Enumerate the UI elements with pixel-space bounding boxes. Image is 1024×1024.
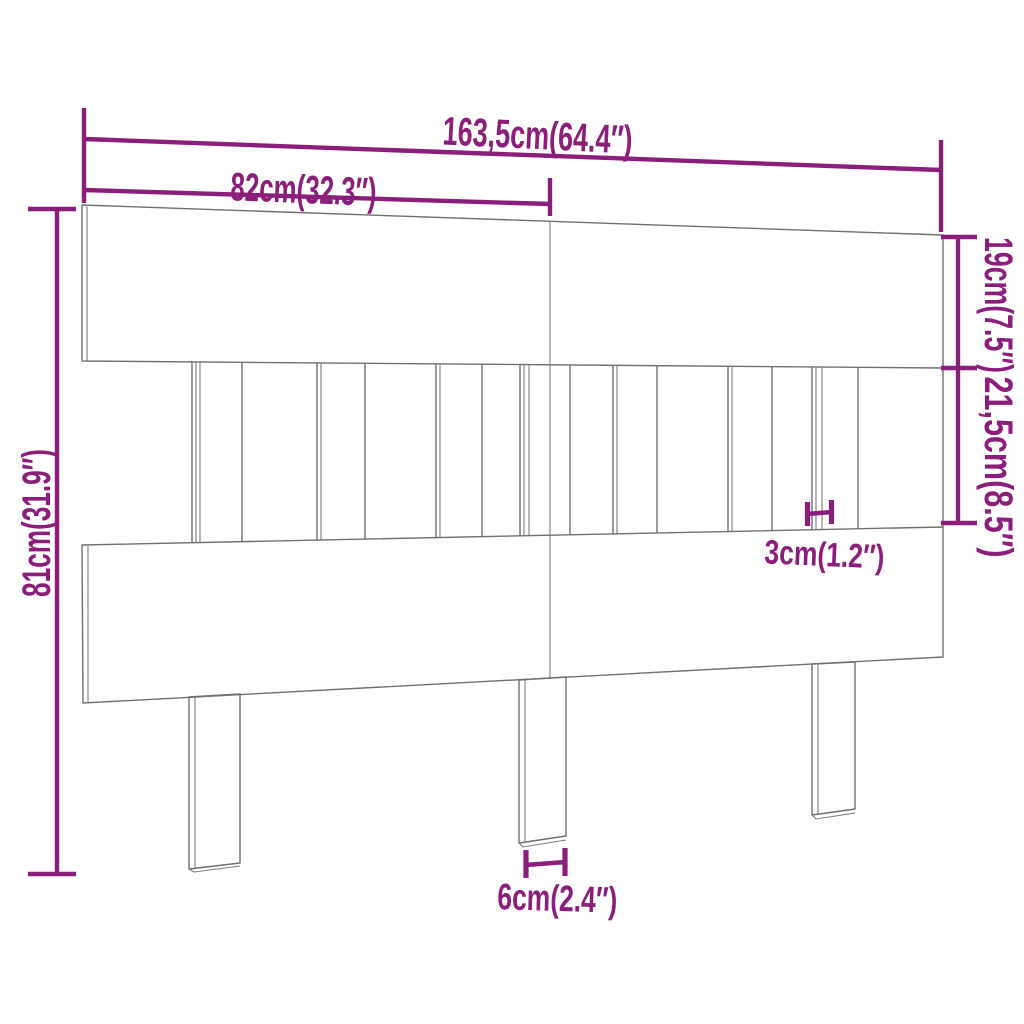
marker-crossbar bbox=[525, 862, 566, 865]
left-leg-face bbox=[189, 694, 240, 869]
headboard-dimension-diagram: 163,5cm(64.4″) 82cm(32.3″) 81cm(31.9″) 1… bbox=[0, 0, 1024, 1024]
top-board-face bbox=[82, 205, 943, 368]
label-half-width: 82cm(32.3″) bbox=[230, 165, 378, 215]
left-leg bbox=[189, 694, 240, 872]
marker-crossbar bbox=[807, 512, 832, 514]
right-leg bbox=[812, 662, 855, 819]
center-leg bbox=[519, 677, 566, 847]
label-overall-width: 163,5cm(64.4″) bbox=[442, 109, 634, 162]
dimension-right-heights bbox=[941, 237, 977, 523]
left-leg-foot-line bbox=[189, 866, 240, 872]
top-board bbox=[82, 205, 943, 368]
dimension-annotations bbox=[28, 108, 977, 878]
center-leg-face bbox=[519, 677, 566, 843]
center-leg-foot-line bbox=[519, 840, 566, 847]
label-slat-section-height: 21,5cm(8.5″) bbox=[976, 377, 1020, 558]
label-slat-width: 3cm(1.2″) bbox=[764, 533, 886, 576]
label-overall-height: 81cm(31.9″) bbox=[15, 449, 59, 597]
dimension-slat-width-marker bbox=[807, 500, 832, 526]
label-leg-width: 6cm(2.4″) bbox=[497, 876, 618, 921]
dimension-leg-width-marker bbox=[525, 848, 566, 878]
dimension-labels: 163,5cm(64.4″) 82cm(32.3″) 81cm(31.9″) 1… bbox=[15, 109, 1020, 920]
diagram-canvas: 163,5cm(64.4″) 82cm(32.3″) 81cm(31.9″) 1… bbox=[0, 0, 1024, 1024]
label-top-board-height: 19cm(7.5″) bbox=[976, 237, 1020, 373]
